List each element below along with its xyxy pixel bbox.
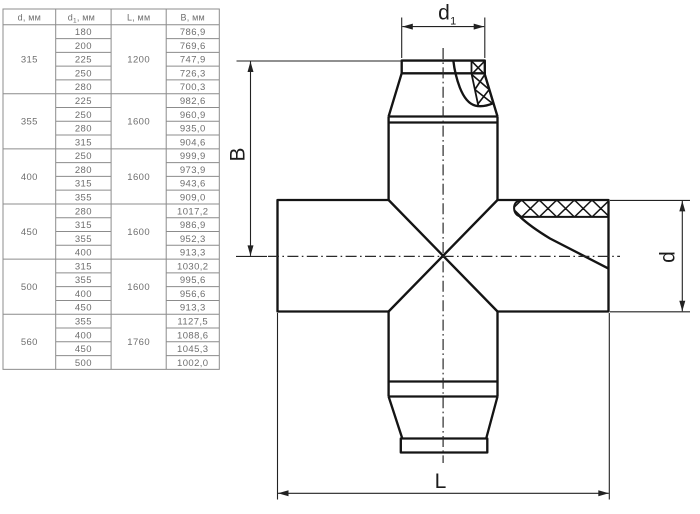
svg-text:500: 500 bbox=[21, 282, 38, 293]
svg-text:200: 200 bbox=[75, 41, 92, 52]
svg-text:225: 225 bbox=[75, 96, 92, 107]
svg-text:560: 560 bbox=[21, 337, 38, 348]
svg-text:995,6: 995,6 bbox=[180, 275, 206, 286]
svg-text:315: 315 bbox=[75, 220, 92, 231]
svg-text:909,0: 909,0 bbox=[180, 192, 206, 203]
svg-text:B, мм: B, мм bbox=[181, 12, 205, 22]
svg-text:355: 355 bbox=[75, 275, 92, 286]
svg-text:315: 315 bbox=[75, 179, 92, 190]
svg-text:1002,0: 1002,0 bbox=[177, 358, 208, 369]
svg-text:786,9: 786,9 bbox=[180, 27, 206, 38]
svg-text:700,3: 700,3 bbox=[180, 82, 206, 93]
svg-text:913,3: 913,3 bbox=[180, 248, 206, 259]
svg-text:400: 400 bbox=[21, 172, 38, 183]
svg-text:1017,2: 1017,2 bbox=[177, 206, 208, 217]
svg-text:180: 180 bbox=[75, 27, 92, 38]
svg-text:1088,6: 1088,6 bbox=[177, 330, 208, 341]
svg-text:250: 250 bbox=[75, 68, 92, 79]
svg-text:280: 280 bbox=[75, 82, 92, 93]
svg-text:935,0: 935,0 bbox=[180, 124, 206, 135]
svg-text:500: 500 bbox=[75, 358, 92, 369]
svg-text:973,9: 973,9 bbox=[180, 165, 206, 176]
svg-text:315: 315 bbox=[75, 261, 92, 272]
svg-text:943,6: 943,6 bbox=[180, 179, 206, 190]
svg-text:1127,5: 1127,5 bbox=[177, 317, 208, 328]
svg-text:1045,3: 1045,3 bbox=[177, 344, 208, 355]
svg-text:450: 450 bbox=[75, 303, 92, 314]
svg-text:747,9: 747,9 bbox=[180, 55, 206, 66]
svg-text:956,6: 956,6 bbox=[180, 289, 206, 300]
svg-text:400: 400 bbox=[75, 289, 92, 300]
svg-text:250: 250 bbox=[75, 151, 92, 162]
svg-text:450: 450 bbox=[21, 227, 38, 238]
svg-text:400: 400 bbox=[75, 248, 92, 259]
svg-text:280: 280 bbox=[75, 165, 92, 176]
svg-text:960,9: 960,9 bbox=[180, 110, 206, 121]
svg-text:280: 280 bbox=[75, 124, 92, 135]
svg-text:355: 355 bbox=[21, 117, 38, 128]
svg-text:952,3: 952,3 bbox=[180, 234, 206, 245]
svg-text:400: 400 bbox=[75, 330, 92, 341]
svg-text:315: 315 bbox=[75, 137, 92, 148]
svg-text:B: B bbox=[226, 147, 249, 161]
svg-text:1600: 1600 bbox=[127, 282, 150, 293]
svg-text:913,3: 913,3 bbox=[180, 303, 206, 314]
svg-text:225: 225 bbox=[75, 55, 92, 66]
svg-text:726,3: 726,3 bbox=[180, 68, 206, 79]
svg-text:355: 355 bbox=[75, 192, 92, 203]
svg-text:450: 450 bbox=[75, 344, 92, 355]
svg-text:1600: 1600 bbox=[127, 227, 150, 238]
svg-text:1: 1 bbox=[450, 16, 456, 28]
svg-text:904,6: 904,6 bbox=[180, 137, 206, 148]
svg-text:986,9: 986,9 bbox=[180, 220, 206, 231]
svg-text:1760: 1760 bbox=[127, 337, 150, 348]
svg-text:1200: 1200 bbox=[127, 55, 150, 66]
svg-text:250: 250 bbox=[75, 110, 92, 121]
svg-text:1030,2: 1030,2 bbox=[177, 261, 208, 272]
svg-text:L, мм: L, мм bbox=[127, 12, 150, 22]
svg-text:355: 355 bbox=[75, 234, 92, 245]
svg-text:315: 315 bbox=[21, 55, 38, 66]
svg-text:d, мм: d, мм bbox=[18, 12, 41, 22]
svg-text:d: d bbox=[656, 251, 679, 263]
svg-text:355: 355 bbox=[75, 317, 92, 328]
svg-text:L: L bbox=[435, 470, 447, 493]
svg-text:769,6: 769,6 bbox=[180, 41, 206, 52]
svg-text:1600: 1600 bbox=[127, 172, 150, 183]
svg-text:982,6: 982,6 bbox=[180, 96, 206, 107]
svg-text:999,9: 999,9 bbox=[180, 151, 206, 162]
svg-text:1600: 1600 bbox=[127, 117, 150, 128]
svg-text:d: d bbox=[438, 2, 450, 25]
svg-text:280: 280 bbox=[75, 206, 92, 217]
